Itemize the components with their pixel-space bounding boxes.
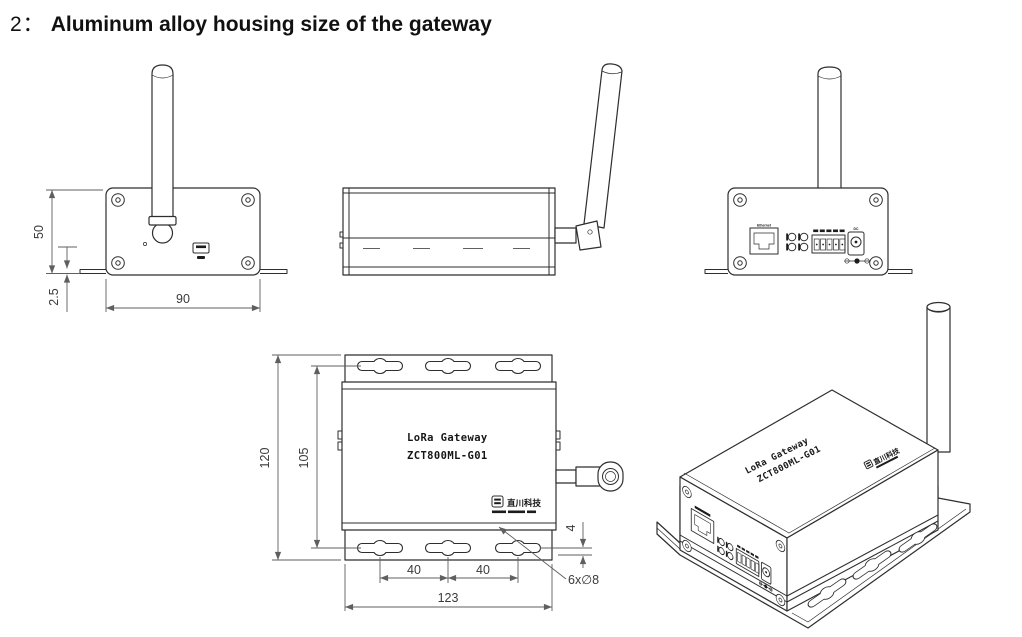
screw-icon (870, 257, 883, 270)
dim-overall-width: 123 (345, 564, 552, 611)
antenna-connector (555, 228, 576, 243)
svg-text:6x∅8: 6x∅8 (568, 573, 599, 587)
front-housing (106, 188, 260, 275)
screw-icon (242, 194, 255, 207)
screw-icon (242, 257, 255, 270)
page-title: 2：Aluminum alloy housing size of the gat… (10, 8, 492, 38)
antenna-connector-top (556, 462, 623, 491)
dim-front-height: 50 (32, 190, 103, 274)
antenna-front (149, 65, 176, 243)
svg-text:2.5: 2.5 (47, 288, 61, 305)
technical-drawing: 50 2.5 90 (0, 0, 1022, 637)
dim-flange-thickness: 2.5 (47, 247, 77, 312)
svg-text:123: 123 (438, 591, 459, 605)
top-view: LoRa Gateway ZCT800ML-G01 直川科技 120 (258, 355, 623, 611)
brand-name: 直川科技 (507, 498, 542, 508)
back-housing (728, 188, 888, 275)
svg-text:120: 120 (258, 448, 272, 469)
polarity-symbol-icon (845, 258, 869, 263)
dim-front-width: 90 (106, 279, 260, 312)
screw-icon (112, 194, 125, 207)
screw-icon (870, 194, 883, 207)
antenna-back (818, 67, 841, 190)
side-housing (343, 188, 555, 275)
product-name: LoRa Gateway (407, 432, 488, 444)
svg-text:105: 105 (297, 448, 311, 469)
screw-icon (112, 257, 125, 270)
front-view: 50 2.5 90 (32, 65, 287, 312)
screw-icon (734, 194, 747, 207)
back-view: Ethernet (705, 67, 912, 275)
dim-hole-pitch-horizontal: 40 40 (380, 557, 518, 583)
front-flange-left (80, 270, 106, 274)
svg-text:40: 40 (407, 563, 421, 577)
side-view (340, 64, 622, 275)
dc-label: DC (854, 227, 859, 231)
product-model: ZCT800ML-G01 (407, 450, 488, 462)
antenna-side (555, 64, 622, 250)
isometric-view: LoRa Gateway ZCT800ML-G01 直川科技 (657, 303, 970, 629)
svg-text:50: 50 (32, 225, 46, 239)
svg-text:4: 4 (564, 524, 578, 531)
drawing-sheet: 2：Aluminum alloy housing size of the gat… (0, 0, 1022, 637)
front-flange-right (260, 270, 287, 274)
screw-icon (734, 257, 747, 270)
title-number: 2： (10, 13, 45, 36)
svg-text:90: 90 (176, 292, 190, 306)
title-text: Aluminum alloy housing size of the gatew… (51, 13, 492, 36)
ethernet-label: Ethernet (757, 224, 772, 228)
antenna-iso (927, 303, 950, 453)
svg-text:40: 40 (476, 563, 490, 577)
